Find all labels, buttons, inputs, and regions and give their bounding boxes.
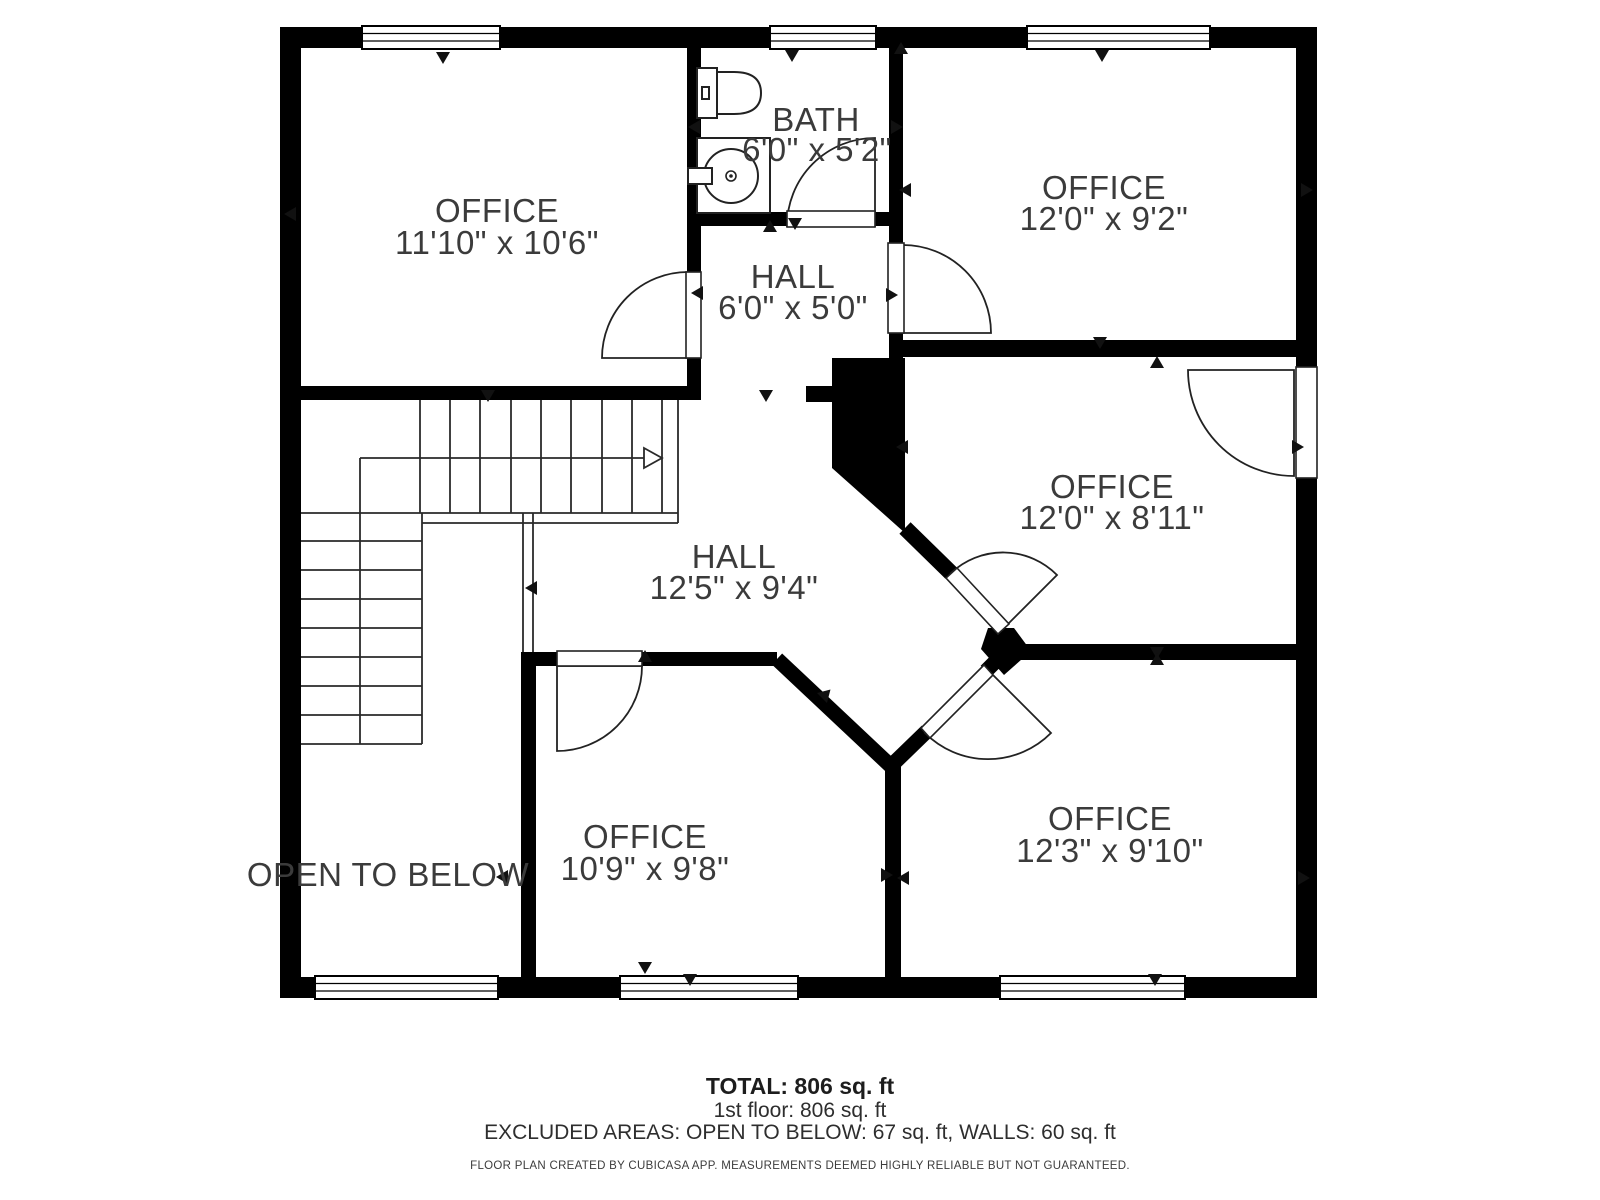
door-icon-office3-exterior (1188, 367, 1317, 478)
room-dims-office-top-right: 12'0" x 9'2" (1020, 200, 1189, 237)
room-label-open-to-below: OPEN TO BELOW (247, 856, 530, 893)
door-icon-office1 (602, 272, 701, 358)
footer: TOTAL: 806 sq. ft 1st floor: 806 sq. ft … (470, 1073, 1130, 1172)
footer-disclaimer: FLOOR PLAN CREATED BY CUBICASA APP. MEAS… (470, 1160, 1130, 1172)
window-icon (1027, 26, 1210, 49)
footer-total-area: TOTAL: 806 sq. ft (706, 1073, 895, 1099)
window-icon (620, 976, 798, 999)
floor-plan-drawing: OFFICE 11'10" x 10'6" BATH 6'0" x 5'2" H… (0, 0, 1600, 1200)
floor-plan-page: OFFICE 11'10" x 10'6" BATH 6'0" x 5'2" H… (0, 0, 1600, 1200)
room-dims-office-mid-right: 12'0" x 8'11" (1019, 499, 1204, 536)
footer-excluded-area: EXCLUDED AREAS: OPEN TO BELOW: 67 sq. ft… (484, 1121, 1116, 1144)
wall-diagonal-a (905, 528, 951, 573)
door-icon-office5 (557, 651, 642, 751)
door-icon-office2 (888, 243, 991, 333)
wall-openbelow-office5 (521, 652, 536, 980)
wall-hall-stub (806, 386, 832, 402)
footer-floor-area: 1st floor: 806 sq. ft (714, 1099, 887, 1122)
door-icon-office3-diagonal (946, 552, 1057, 634)
marker-icon (638, 962, 652, 974)
toilet-icon (697, 68, 761, 118)
room-dims-office-top-left: 11'10" x 10'6" (395, 224, 599, 261)
room-dims-office-bot-right: 12'3" x 9'10" (1016, 832, 1203, 869)
wall-office5-top-left (536, 652, 557, 666)
marker-icon (436, 52, 450, 64)
room-dims-office-bot-mid: 10'9" x 9'8" (561, 850, 730, 887)
wall-bath-bottom-left (701, 212, 787, 226)
room-dims-hall-upper: 6'0" x 5'0" (718, 289, 868, 326)
marker-icon (1150, 356, 1164, 368)
window-icon (362, 26, 500, 49)
wall-office5-top-right (642, 652, 777, 666)
room-dims-hall-lower: 12'5" x 9'4" (650, 569, 819, 606)
wall-diagonal-b2 (893, 731, 927, 764)
door-icon-office4-diagonal (921, 665, 1051, 759)
marker-icon (785, 50, 799, 62)
wall-outer-left (280, 27, 301, 998)
marker-icon (1095, 50, 1109, 62)
window-icon (315, 976, 498, 999)
marker-icon (525, 581, 537, 595)
wall-office5-corner-diagonal (777, 659, 895, 770)
marker-icon (759, 390, 773, 402)
room-dims-bath: 6'0" x 5'2" (742, 131, 892, 168)
wall-center-pentagon (832, 358, 905, 533)
wall-office1-bottom (301, 386, 701, 400)
wall-outer-right (1296, 27, 1317, 998)
wall-bath-bottom-right (875, 212, 889, 226)
window-icon (770, 26, 876, 49)
